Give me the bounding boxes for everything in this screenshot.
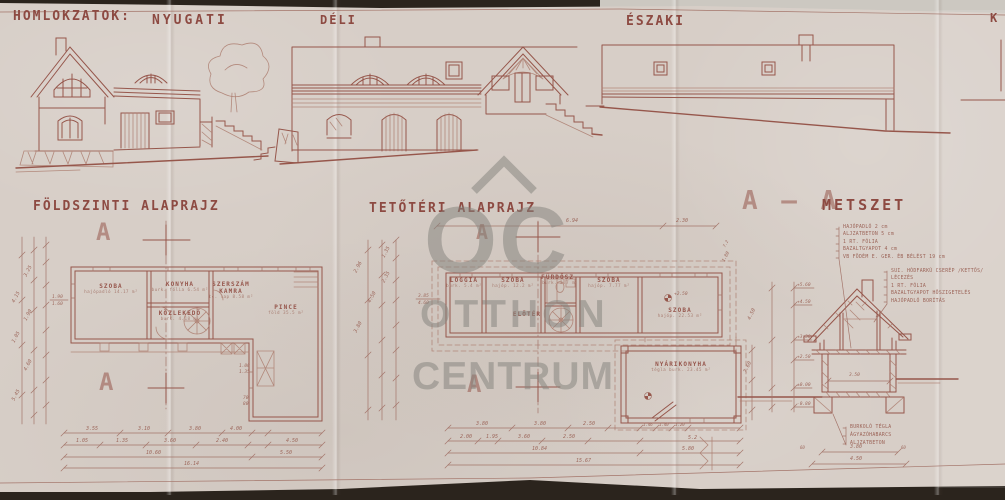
blueprint-line-drawing [0,0,1005,500]
north-elevation-drawing [586,35,950,133]
tree-drawing [208,43,269,112]
spiral-stair-symbol [549,308,573,332]
east-elevation-partial-drawing [961,40,1005,100]
scanned-blueprint-photo: HOMLOKZATOK: NYUGATI DÉLI ÉSZAKI K FÖLDS… [0,0,1005,500]
level-mark-symbol [645,393,652,400]
level-mark-symbol [665,295,672,302]
spiral-stair-symbol [184,308,210,334]
west-elevation-drawing [16,38,269,172]
section-a-a-drawing [738,227,958,467]
attic-floor-plan-drawing [365,221,755,470]
ground-floor-plan-drawing [19,221,325,471]
south-elevation-drawing [254,37,602,164]
